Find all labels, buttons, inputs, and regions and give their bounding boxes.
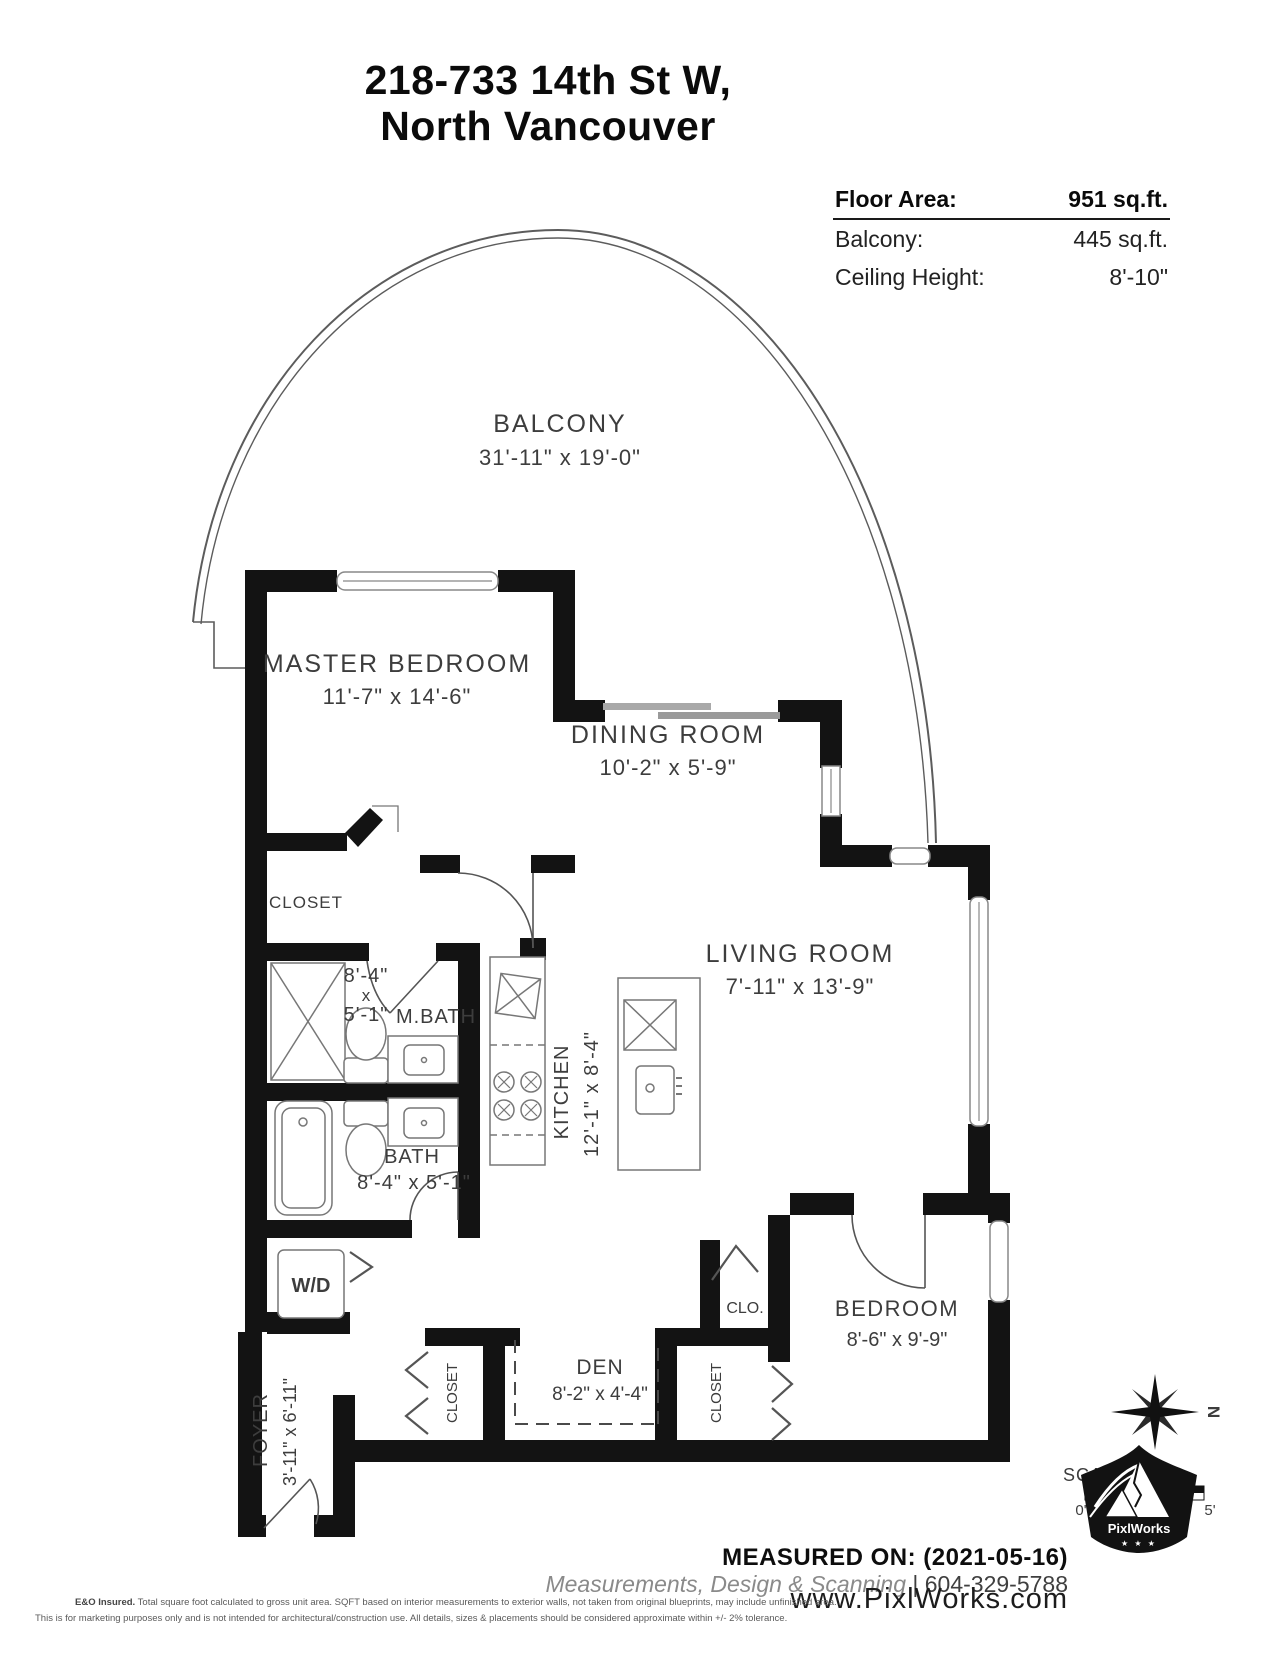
room-dims-bedroom: 8'-6" x 9'-9" (847, 1329, 948, 1351)
room-label-closet-hall: CLOSET (444, 1363, 461, 1423)
kitchen-sink (495, 973, 540, 1018)
mbath-dim-width: 8'-4" (344, 965, 389, 987)
room-dims-balcony: 31'-11" x 19'-0" (479, 445, 641, 470)
disclaimer-bold: E&O Insured. (75, 1597, 135, 1608)
room-dims-living-room: 7'-11" x 13'-9" (726, 974, 875, 999)
room-dims-bath: 8'-4" x 5'-1" (357, 1172, 471, 1194)
compass-rose-icon: N (1111, 1374, 1223, 1450)
room-label-wd: W/D (292, 1275, 331, 1297)
mbath-dim-height: 5'-1" (344, 1004, 389, 1026)
room-label-master-bedroom: MASTER BEDROOM (263, 650, 531, 678)
fixtures (271, 806, 700, 1318)
island-sink (624, 1000, 676, 1050)
room-label-bath: BATH (384, 1146, 440, 1168)
room-dims-master-bedroom: 11'-7" x 14'-6" (323, 684, 472, 709)
mbath-dim-sep: x (362, 986, 371, 1005)
room-label-balcony: BALCONY (493, 410, 626, 438)
room-label-closet-master: CLOSET (269, 893, 343, 912)
shower (271, 963, 345, 1080)
room-label-dining-room: DINING ROOM (571, 721, 765, 749)
logo-wordmark: PixlWorks (1108, 1521, 1171, 1536)
room-label-living-room: LIVING ROOM (706, 940, 895, 968)
disclaimer-line2: This is for marketing purposes only and … (35, 1613, 787, 1624)
disclaimer-text: E&O Insured. Total square foot calculate… (35, 1595, 845, 1626)
room-label-foyer: FOYER (250, 1393, 272, 1467)
kitchen-counter (490, 957, 545, 1165)
room-dims-den: 8'-2" x 4'-4" (552, 1384, 648, 1405)
bathtub (275, 1101, 332, 1215)
room-label-closet-bedroom: CLOSET (708, 1363, 725, 1423)
room-label-bedroom: BEDROOM (835, 1296, 959, 1321)
pixlworks-logo: PixlWorks ★ ★ ★ (1075, 1445, 1203, 1553)
room-label-den: DEN (576, 1356, 623, 1379)
den-dashed-outline (515, 1340, 658, 1424)
measured-on-text: MEASURED ON: (2021-05-16) (722, 1544, 1068, 1572)
room-dims-foyer: 3'-11" x 6'-11" (280, 1378, 300, 1486)
floorplan-drawing: BALCONY 31'-11" x 19'-0" MASTER BEDROOM … (0, 0, 1280, 1658)
room-label-kitchen: KITCHEN (551, 1045, 573, 1140)
room-label-mbath: M.BATH (396, 1006, 476, 1028)
scale-end-label: 5' (1204, 1502, 1215, 1519)
room-dims-dining-room: 10'-2" x 5'-9" (599, 755, 736, 780)
room-dims-kitchen: 12'-1" x 8'-4" (581, 1031, 603, 1157)
compass-north-label: N (1204, 1406, 1223, 1418)
toilet-2 (344, 1101, 388, 1176)
room-label-clo: CLO. (726, 1300, 763, 1317)
floorplan-page: 218-733 14th St W, North Vancouver Floor… (0, 0, 1280, 1658)
logo-stars: ★ ★ ★ (1121, 1539, 1157, 1548)
disclaimer-line1: Total square foot calculated to gross un… (138, 1597, 837, 1608)
kitchen-island (618, 978, 700, 1170)
vanity-sink-1 (388, 1036, 458, 1083)
vanity-sink-2 (388, 1098, 458, 1146)
